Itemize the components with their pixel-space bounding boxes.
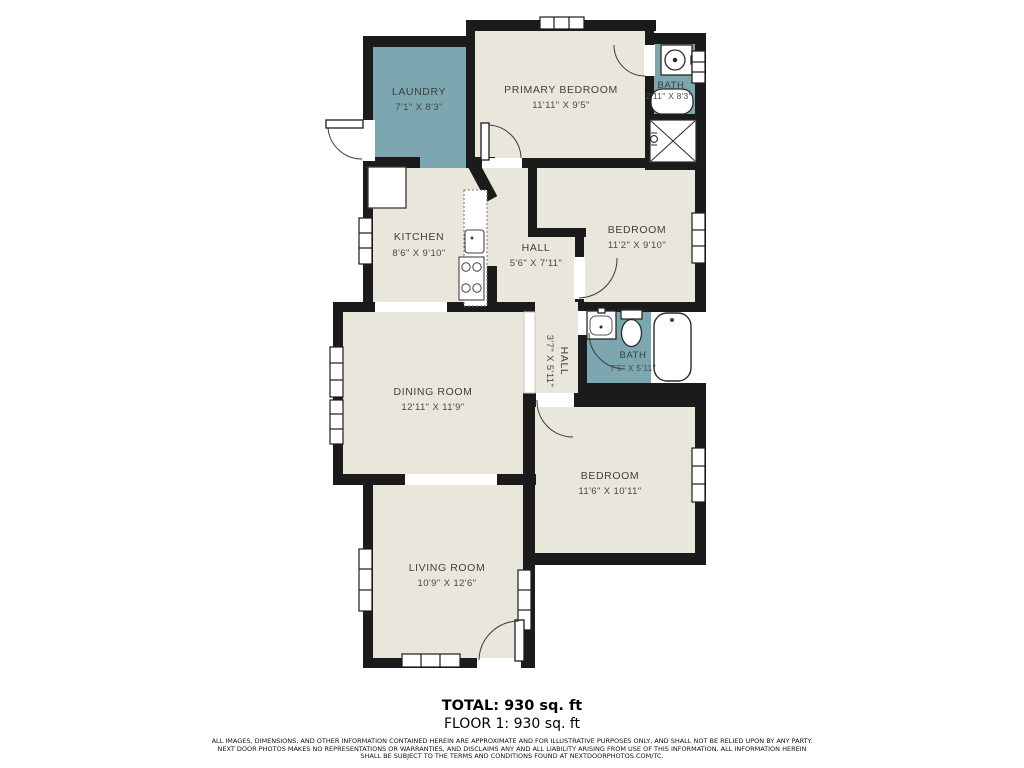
dining-living-opening xyxy=(405,474,497,485)
floor-plan-canvas: LAUNDRY 7'1" X 8'3" PRIMARY BEDROOM 11'1… xyxy=(0,0,1024,768)
hall-mid-floor xyxy=(535,308,579,397)
bath-upper-door-opening xyxy=(644,45,655,76)
room-name: BATH xyxy=(657,80,684,91)
room-name: LIVING ROOM xyxy=(409,562,486,574)
room-dims: 7'1" X 8'3" xyxy=(395,102,443,113)
window-kitchen-left xyxy=(359,218,372,264)
disclaimer-line: SHALL BE SUBJECT TO THE TERMS AND CONDIT… xyxy=(0,753,1024,761)
window-living-left xyxy=(359,549,372,611)
room-dims: 7'5" X 5'11" xyxy=(610,364,656,373)
window-bedroom-ne-right xyxy=(692,213,705,263)
room-name: LAUNDRY xyxy=(392,86,446,98)
window-living-bottom xyxy=(402,654,460,667)
shower-icon xyxy=(650,120,696,162)
hall-passage-opening xyxy=(535,302,578,312)
toilet-icon xyxy=(621,310,642,347)
total-area-text: TOTAL: 930 sq. ft xyxy=(0,698,1024,714)
room-dims: 12'11" X 11'9" xyxy=(401,402,464,413)
dining-hall-cased-opening xyxy=(524,312,535,393)
room-dims: 3'7" X 5'11" xyxy=(544,335,555,388)
bath-mid-door-opening xyxy=(578,311,587,335)
laundry-kitchen-opening xyxy=(420,157,466,168)
window-bath-upper-right xyxy=(692,51,705,83)
room-name: HALL xyxy=(558,347,570,376)
bathtub-mid-icon xyxy=(654,313,691,381)
bathroom-sink-mid-icon xyxy=(587,308,616,339)
disclaimer-text: ALL IMAGES, DIMENSIONS, AND OTHER INFORM… xyxy=(0,738,1024,761)
room-dims: 2'11" X 8'3" xyxy=(646,92,692,101)
floor-plan-page: LAUNDRY 7'1" X 8'3" PRIMARY BEDROOM 11'1… xyxy=(0,0,1024,768)
room-dims: 10'9" X 12'6" xyxy=(418,578,477,589)
room-name: PRIMARY BEDROOM xyxy=(504,84,618,96)
room-name: HALL xyxy=(522,242,551,254)
room-name: BEDROOM xyxy=(608,224,666,236)
window-primary-top xyxy=(540,17,584,29)
room-dims: 11'2" X 9'10" xyxy=(608,240,666,251)
window-bedroom-se-right xyxy=(692,448,705,502)
room-name: KITCHEN xyxy=(394,231,444,243)
window-dining-left-2 xyxy=(330,400,343,444)
refrigerator-icon xyxy=(368,167,406,208)
kitchen-dining-opening xyxy=(375,302,447,312)
room-name: BATH xyxy=(619,350,646,361)
bedroom-ne-door-opening xyxy=(574,257,585,299)
bedroom-se-door-opening xyxy=(536,393,574,407)
floor-area-text: FLOOR 1: 930 sq. ft xyxy=(0,716,1024,732)
room-dims: 8'6" X 9'10" xyxy=(392,248,445,259)
exterior-side-door xyxy=(326,120,363,159)
room-name: DINING ROOM xyxy=(394,386,473,398)
room-dims: 11'11" X 9'5" xyxy=(532,100,589,111)
room-name: BEDROOM xyxy=(581,470,639,482)
room-dims: 11'6" X 10'11" xyxy=(578,486,641,497)
footer: TOTAL: 930 sq. ft FLOOR 1: 930 sq. ft AL… xyxy=(0,698,1024,761)
primary-bedroom-floor xyxy=(472,28,650,164)
bathroom-sink-icon xyxy=(661,45,696,75)
window-dining-left-1 xyxy=(330,347,343,397)
room-dims: 5'6" X 7'11" xyxy=(510,258,563,269)
stove-icon xyxy=(459,257,484,300)
